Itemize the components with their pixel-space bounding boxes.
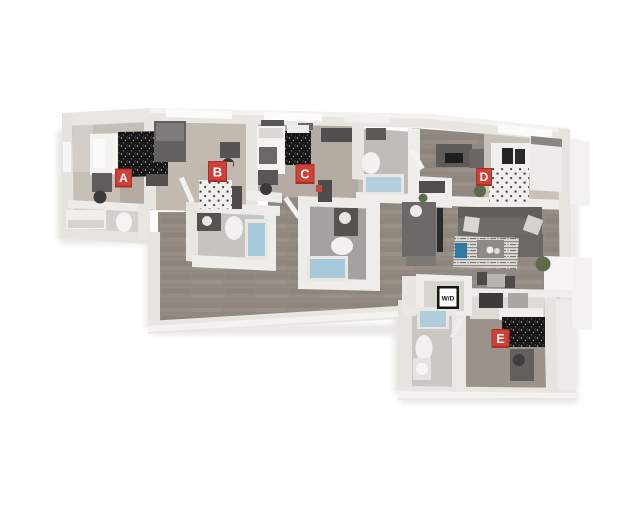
svg-text:B: B: [213, 165, 222, 180]
svg-text:A: A: [119, 171, 128, 185]
svg-text:E: E: [496, 332, 504, 346]
svg-text:W/D: W/D: [442, 296, 455, 303]
svg-text:D: D: [480, 170, 489, 184]
svg-text:C: C: [300, 167, 310, 182]
